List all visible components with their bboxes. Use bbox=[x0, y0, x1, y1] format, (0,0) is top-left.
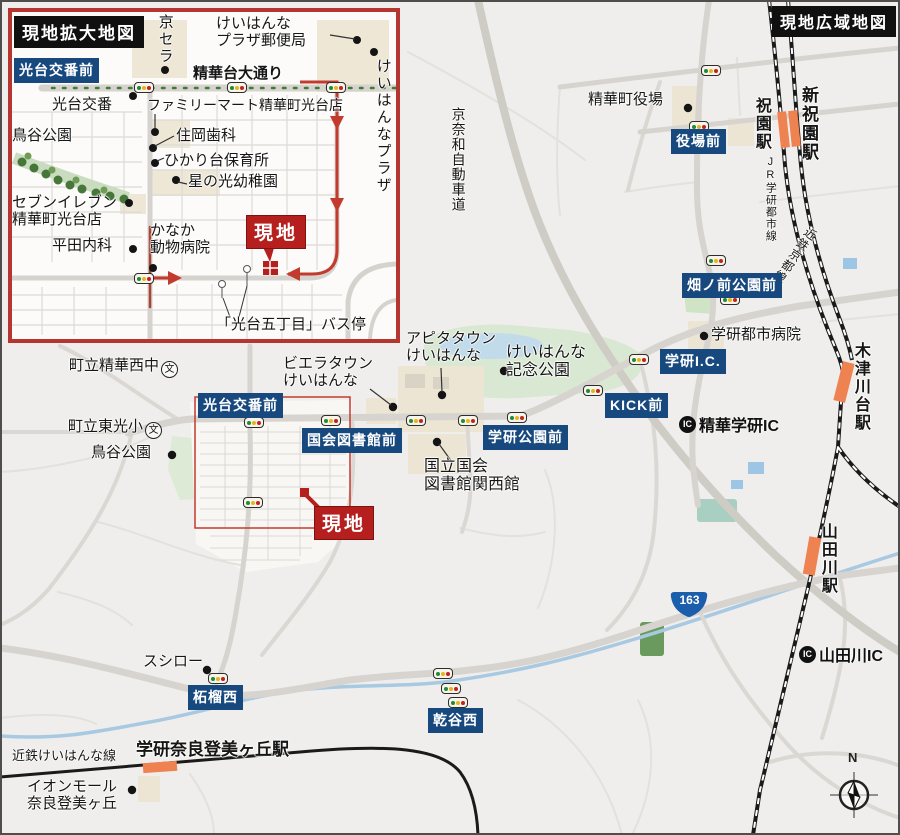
site-badge-wide: 現地 bbox=[314, 506, 374, 540]
badge-kokkai-toshokanmae: 国会図書館前 bbox=[302, 428, 402, 453]
poi-seven-eleven: セブンイレブン 精華町光台店 bbox=[12, 195, 117, 229]
road-keinawa-expressway: 京奈和自動車道 bbox=[449, 107, 465, 212]
badge-kotai-kobanmae-wide: 光台交番前 bbox=[198, 393, 283, 418]
compass-icon bbox=[830, 772, 878, 818]
badge-kick-mae: KICK前 bbox=[605, 393, 668, 418]
site-badge-inset: 現地 bbox=[246, 215, 306, 249]
badge-inuidani-nishi: 乾谷西 bbox=[428, 708, 483, 733]
poi-sushiro: スシロー bbox=[143, 654, 203, 671]
station-kizugawadai: 木津川台駅 bbox=[851, 342, 869, 432]
traffic-signal-icon bbox=[406, 415, 426, 426]
poi-hirata-clinic: 平田内科 bbox=[52, 238, 112, 255]
school-mark-icon: 文 bbox=[145, 422, 162, 439]
traffic-signal-icon bbox=[441, 683, 461, 694]
poi-viera-town: ビエラタウン けいはんな bbox=[283, 356, 373, 390]
route-163-label: 163 bbox=[671, 593, 708, 607]
seika-gakken-ic: IC 精華学研IC bbox=[679, 412, 779, 436]
traffic-signal-icon bbox=[433, 668, 453, 679]
seika-gakken-ic-label: 精華学研IC bbox=[699, 412, 779, 436]
badge-kotai-kobanmae-inset: 光台交番前 bbox=[14, 58, 99, 83]
poi-familymart: ファミリーマート精華町光台店 bbox=[147, 99, 343, 115]
poi-seika-town-hall: 精華町役場 bbox=[588, 92, 663, 109]
school-mark-icon: 文 bbox=[161, 361, 178, 378]
traffic-signal-icon bbox=[706, 255, 726, 266]
poi-kyocera: 京セラ bbox=[156, 14, 173, 65]
yamadagawa-ic: IC 山田川IC bbox=[799, 642, 883, 666]
railway-kintetsu-keihanna-line: 近鉄けいはんな線 bbox=[12, 749, 116, 764]
poi-hoshinohikari-kindergarten: 星の光幼稚園 bbox=[188, 174, 278, 191]
traffic-signal-icon bbox=[227, 82, 247, 93]
station-yamadagawa: 山田川駅 bbox=[818, 523, 836, 595]
road-seikadai-odori: 精華台大通り bbox=[193, 66, 283, 83]
traffic-signal-icon bbox=[701, 65, 721, 76]
poi-kotai-koban: 光台交番 bbox=[52, 97, 112, 114]
ic-icon: IC bbox=[679, 416, 696, 433]
badge-gakken-ic: 学研I.C. bbox=[660, 349, 726, 374]
traffic-signal-icon bbox=[243, 497, 263, 508]
poi-toko-es: 町立東光小文 bbox=[68, 419, 162, 439]
station-gakken-nara-tomigaoka: 学研奈良登美ヶ丘駅 bbox=[136, 740, 289, 759]
compass-north-label: N bbox=[848, 750, 857, 765]
traffic-signal-icon bbox=[321, 415, 341, 426]
wide-map-title: 現地広域地図 bbox=[772, 6, 896, 37]
station-shin-hosono: 新祝園駅 bbox=[799, 86, 818, 162]
poi-sumioka-dental: 住岡歯科 bbox=[176, 128, 236, 145]
traffic-signal-icon bbox=[629, 354, 649, 365]
traffic-signal-icon bbox=[134, 82, 154, 93]
traffic-signal-icon bbox=[448, 697, 468, 708]
inset-map-title: 現地拡大地図 bbox=[14, 16, 144, 48]
traffic-signal-icon bbox=[208, 673, 228, 684]
ic-icon: IC bbox=[799, 646, 816, 663]
traffic-signal-icon bbox=[244, 417, 264, 428]
location-map: 現地広域地図 精華町役場 役場前 祝園駅 新祝園駅 JR学研都市線 近鉄京都線 … bbox=[0, 0, 900, 835]
poi-keihanna-plaza: けいはんなプラザ bbox=[374, 58, 391, 194]
traffic-signal-icon bbox=[583, 385, 603, 396]
traffic-signal-icon bbox=[134, 273, 154, 284]
traffic-signal-icon bbox=[326, 82, 346, 93]
poi-keihanna-plaza-post-office: けいはんな プラザ郵便局 bbox=[216, 16, 306, 50]
railway-jr-gakkentoshi-line: JR学研都市線 bbox=[764, 156, 776, 242]
badge-hatanomae-koenmae: 畑ノ前公園前 bbox=[682, 273, 782, 298]
enlarged-map-inset: 現地拡大地図 京セラ けいはんな プラザ郵便局 光台交番前 精華台大通り 光台交… bbox=[8, 8, 400, 343]
badge-yakubamae: 役場前 bbox=[671, 129, 726, 154]
traffic-signal-icon bbox=[507, 412, 527, 423]
poi-toriya-park-inset: 鳥谷公園 bbox=[12, 128, 72, 145]
traffic-signal-icon bbox=[458, 415, 478, 426]
badge-zakuro-nishi: 柘榴西 bbox=[188, 685, 243, 710]
poi-aeon-mall: イオンモール 奈良登美ヶ丘 bbox=[27, 779, 117, 813]
poi-hikaridai-nursery: ひかり台保育所 bbox=[164, 153, 269, 170]
yamadagawa-ic-label: 山田川IC bbox=[819, 642, 883, 666]
poi-keihanna-kinen-park: けいはんな 記念公園 bbox=[506, 344, 586, 380]
poi-gakken-toshi-hospital: 学研都市病院 bbox=[711, 327, 801, 344]
badge-gakken-koenmae: 学研公園前 bbox=[483, 425, 568, 450]
poi-toriya-park-wide: 鳥谷公園 bbox=[91, 445, 151, 462]
poi-kanaka-vet: かなか 動物病院 bbox=[150, 223, 210, 257]
station-hosono: 祝園駅 bbox=[752, 97, 770, 151]
poi-apita-town: アピタタウン けいはんな bbox=[406, 331, 496, 365]
bus-stop-icons bbox=[219, 266, 251, 318]
poi-diet-library-kansai: 国立国会 図書館関西館 bbox=[424, 458, 520, 494]
poi-seika-nishi-jhs: 町立精華西中文 bbox=[69, 358, 178, 378]
poi-bus-stop-kotai-5chome: 「光台五丁目」バス停 bbox=[216, 317, 366, 334]
